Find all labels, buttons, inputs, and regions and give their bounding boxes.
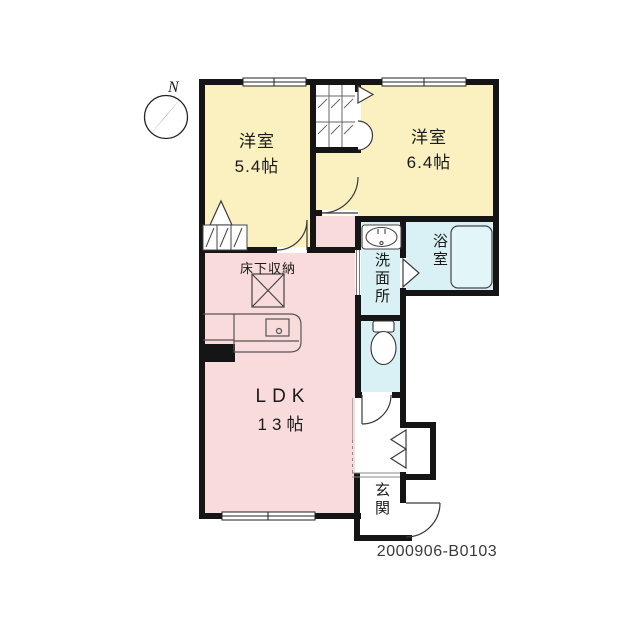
window-bedroom2 bbox=[382, 78, 466, 86]
room-bedroom2-floor-ext bbox=[316, 150, 358, 216]
compass-n-label: N bbox=[168, 79, 179, 97]
door-arc-toilet bbox=[362, 395, 391, 424]
window-bedroom1 bbox=[243, 78, 306, 86]
center-closet bbox=[316, 85, 355, 147]
bedroom1-label: 洋室 5.4帖 bbox=[235, 130, 280, 179]
plan-number: 2000906-B0103 bbox=[377, 543, 497, 561]
ldk-name: LDK bbox=[256, 386, 311, 408]
washbasin bbox=[362, 225, 401, 249]
entrance-door-arc bbox=[406, 503, 440, 537]
bedroom2-size: 6.4帖 bbox=[407, 151, 452, 176]
floorplan-drawing bbox=[0, 0, 640, 640]
bedroom1-name: 洋室 bbox=[235, 130, 280, 155]
window-ldk bbox=[222, 512, 315, 520]
bedroom2-label: 洋室 6.4帖 bbox=[407, 126, 452, 175]
kitchen-partition-wall bbox=[199, 344, 235, 362]
compass-icon bbox=[145, 95, 188, 139]
bedroom2-name: 洋室 bbox=[407, 126, 452, 151]
toilet bbox=[371, 321, 396, 365]
underfloor-storage-label: 床下収納 bbox=[240, 258, 296, 277]
entrance-step bbox=[352, 398, 400, 477]
entrance-label: 玄関 bbox=[371, 482, 392, 518]
bathroom-label: 浴室 bbox=[429, 233, 450, 269]
floorplan-page: 洋室 5.4帖 洋室 6.4帖 LDK 13帖 床下収納 洗面所 浴室 玄関 N… bbox=[0, 0, 640, 640]
bathtub bbox=[451, 226, 492, 288]
washroom-label: 洗面所 bbox=[371, 252, 392, 306]
ldk-size: 13帖 bbox=[256, 410, 311, 435]
bedroom1-size: 5.4帖 bbox=[235, 155, 280, 180]
room-ldk-floor bbox=[202, 250, 355, 513]
ldk-label: LDK 13帖 bbox=[256, 386, 311, 435]
bedroom1-closet bbox=[203, 225, 247, 250]
